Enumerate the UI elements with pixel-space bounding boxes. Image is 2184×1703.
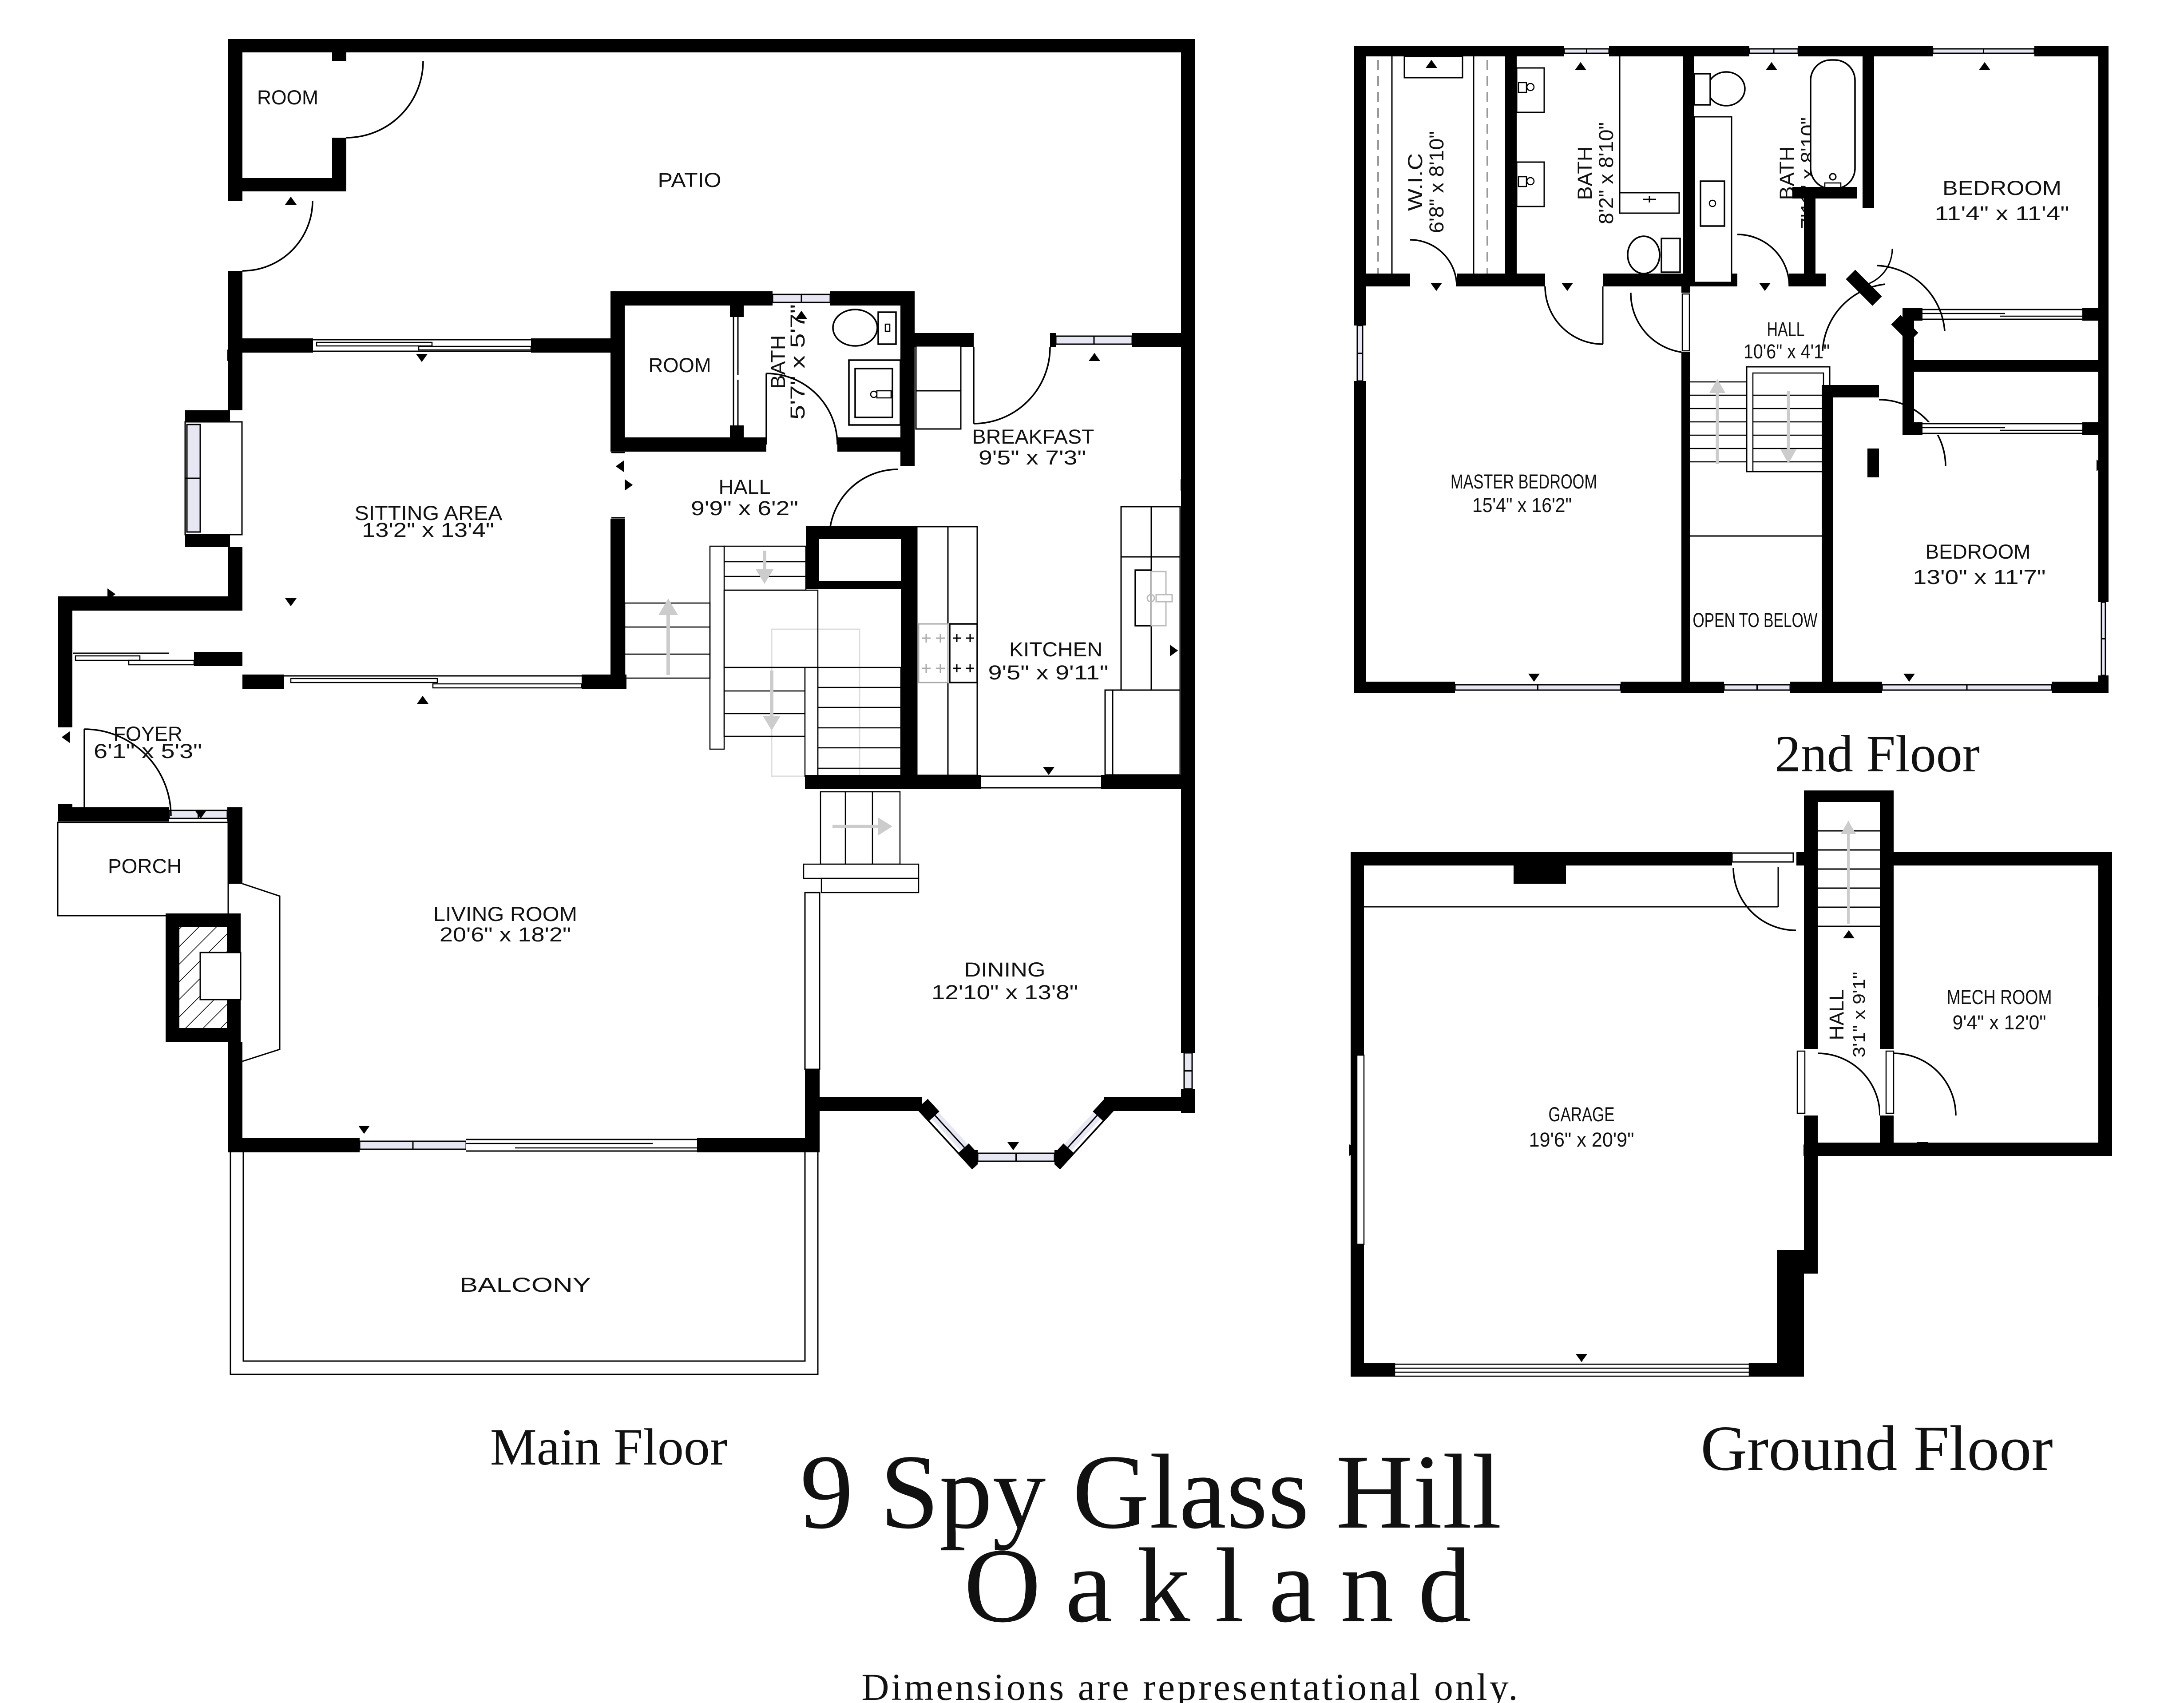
svg-text:9'5" x 9'11": 9'5" x 9'11" — [988, 661, 1109, 684]
svg-text:BEDROOM: BEDROOM — [1926, 540, 2031, 563]
svg-text:BALCONY: BALCONY — [460, 1274, 591, 1296]
svg-text:OPEN TO BELOW: OPEN TO BELOW — [1693, 609, 1818, 631]
svg-text:20'6" x 18'2": 20'6" x 18'2" — [440, 923, 571, 946]
svg-text:GARAGE: GARAGE — [1549, 1103, 1615, 1126]
svg-text:ROOM: ROOM — [649, 354, 711, 377]
svg-text:9'4" x 12'0": 9'4" x 12'0" — [1953, 1011, 2046, 1034]
svg-text:BATH: BATH — [1574, 147, 1596, 200]
svg-text:6'8" x 8'10": 6'8" x 8'10" — [1425, 131, 1448, 233]
svg-text:HALL: HALL — [1767, 318, 1805, 341]
svg-text:W.I.C: W.I.C — [1404, 153, 1427, 211]
svg-text:Ground Floor: Ground Floor — [1700, 1413, 2053, 1484]
svg-text:PATIO: PATIO — [658, 169, 721, 191]
svg-text:6'1" x 5'3": 6'1" x 5'3" — [94, 740, 202, 762]
svg-text:MASTER BEDROOM: MASTER BEDROOM — [1451, 470, 1597, 493]
svg-text:12'10" x 13'8": 12'10" x 13'8" — [931, 981, 1078, 1004]
svg-text:9'9" x 6'2": 9'9" x 6'2" — [691, 497, 798, 520]
svg-text:9'5" x 7'3": 9'5" x 7'3" — [979, 446, 1086, 469]
svg-text:19'6" x 20'9": 19'6" x 20'9" — [1529, 1128, 1634, 1151]
svg-text:Main Floor: Main Floor — [490, 1418, 727, 1476]
svg-text:13'0" x 11'7": 13'0" x 11'7" — [1913, 566, 2046, 588]
svg-text:MECH ROOM: MECH ROOM — [1947, 986, 2052, 1008]
svg-text:15'4" x 16'2": 15'4" x 16'2" — [1472, 494, 1572, 516]
svg-text:5'7" x 5'7": 5'7" x 5'7" — [786, 304, 809, 420]
svg-text:13'2" x 13'4": 13'2" x 13'4" — [362, 519, 494, 541]
svg-text:Dimensions are representationa: Dimensions are representational only. — [861, 1666, 1520, 1703]
svg-text:HALL: HALL — [1825, 989, 1848, 1040]
svg-text:BEDROOM: BEDROOM — [1942, 177, 2061, 199]
svg-text:10'6" x 4'1": 10'6" x 4'1" — [1744, 340, 1830, 363]
svg-text:3'1" x 9'1": 3'1" x 9'1" — [1850, 972, 1869, 1058]
svg-text:HALL: HALL — [719, 476, 771, 498]
svg-text:11'4" x 11'4": 11'4" x 11'4" — [1935, 202, 2069, 225]
svg-text:LIVING ROOM: LIVING ROOM — [433, 903, 577, 925]
svg-text:PORCH: PORCH — [108, 855, 182, 877]
svg-text:ROOM: ROOM — [257, 86, 318, 109]
svg-text:2nd Floor: 2nd Floor — [1775, 725, 1980, 783]
svg-text:Oakland: Oakland — [964, 1526, 1496, 1644]
svg-text:BREAKFAST: BREAKFAST — [972, 425, 1094, 448]
svg-text:DINING: DINING — [964, 958, 1046, 981]
svg-text:KITCHEN: KITCHEN — [1009, 638, 1102, 661]
svg-text:8'2" x 8'10": 8'2" x 8'10" — [1595, 122, 1617, 224]
